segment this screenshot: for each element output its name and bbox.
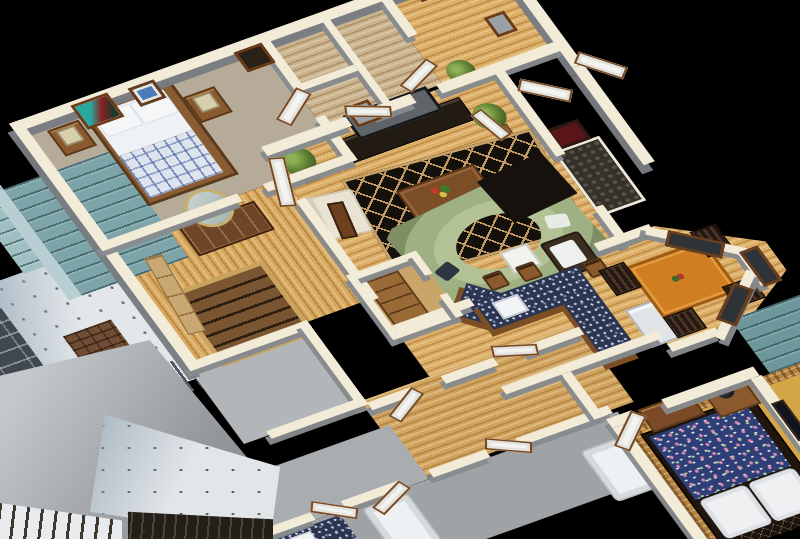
sofa-pillow-light	[544, 213, 572, 229]
sofa-pillow-dark	[434, 261, 461, 282]
door-closet-1	[344, 105, 392, 117]
door-hall-north-2	[490, 344, 539, 358]
house-render-canvas	[0, 0, 800, 539]
